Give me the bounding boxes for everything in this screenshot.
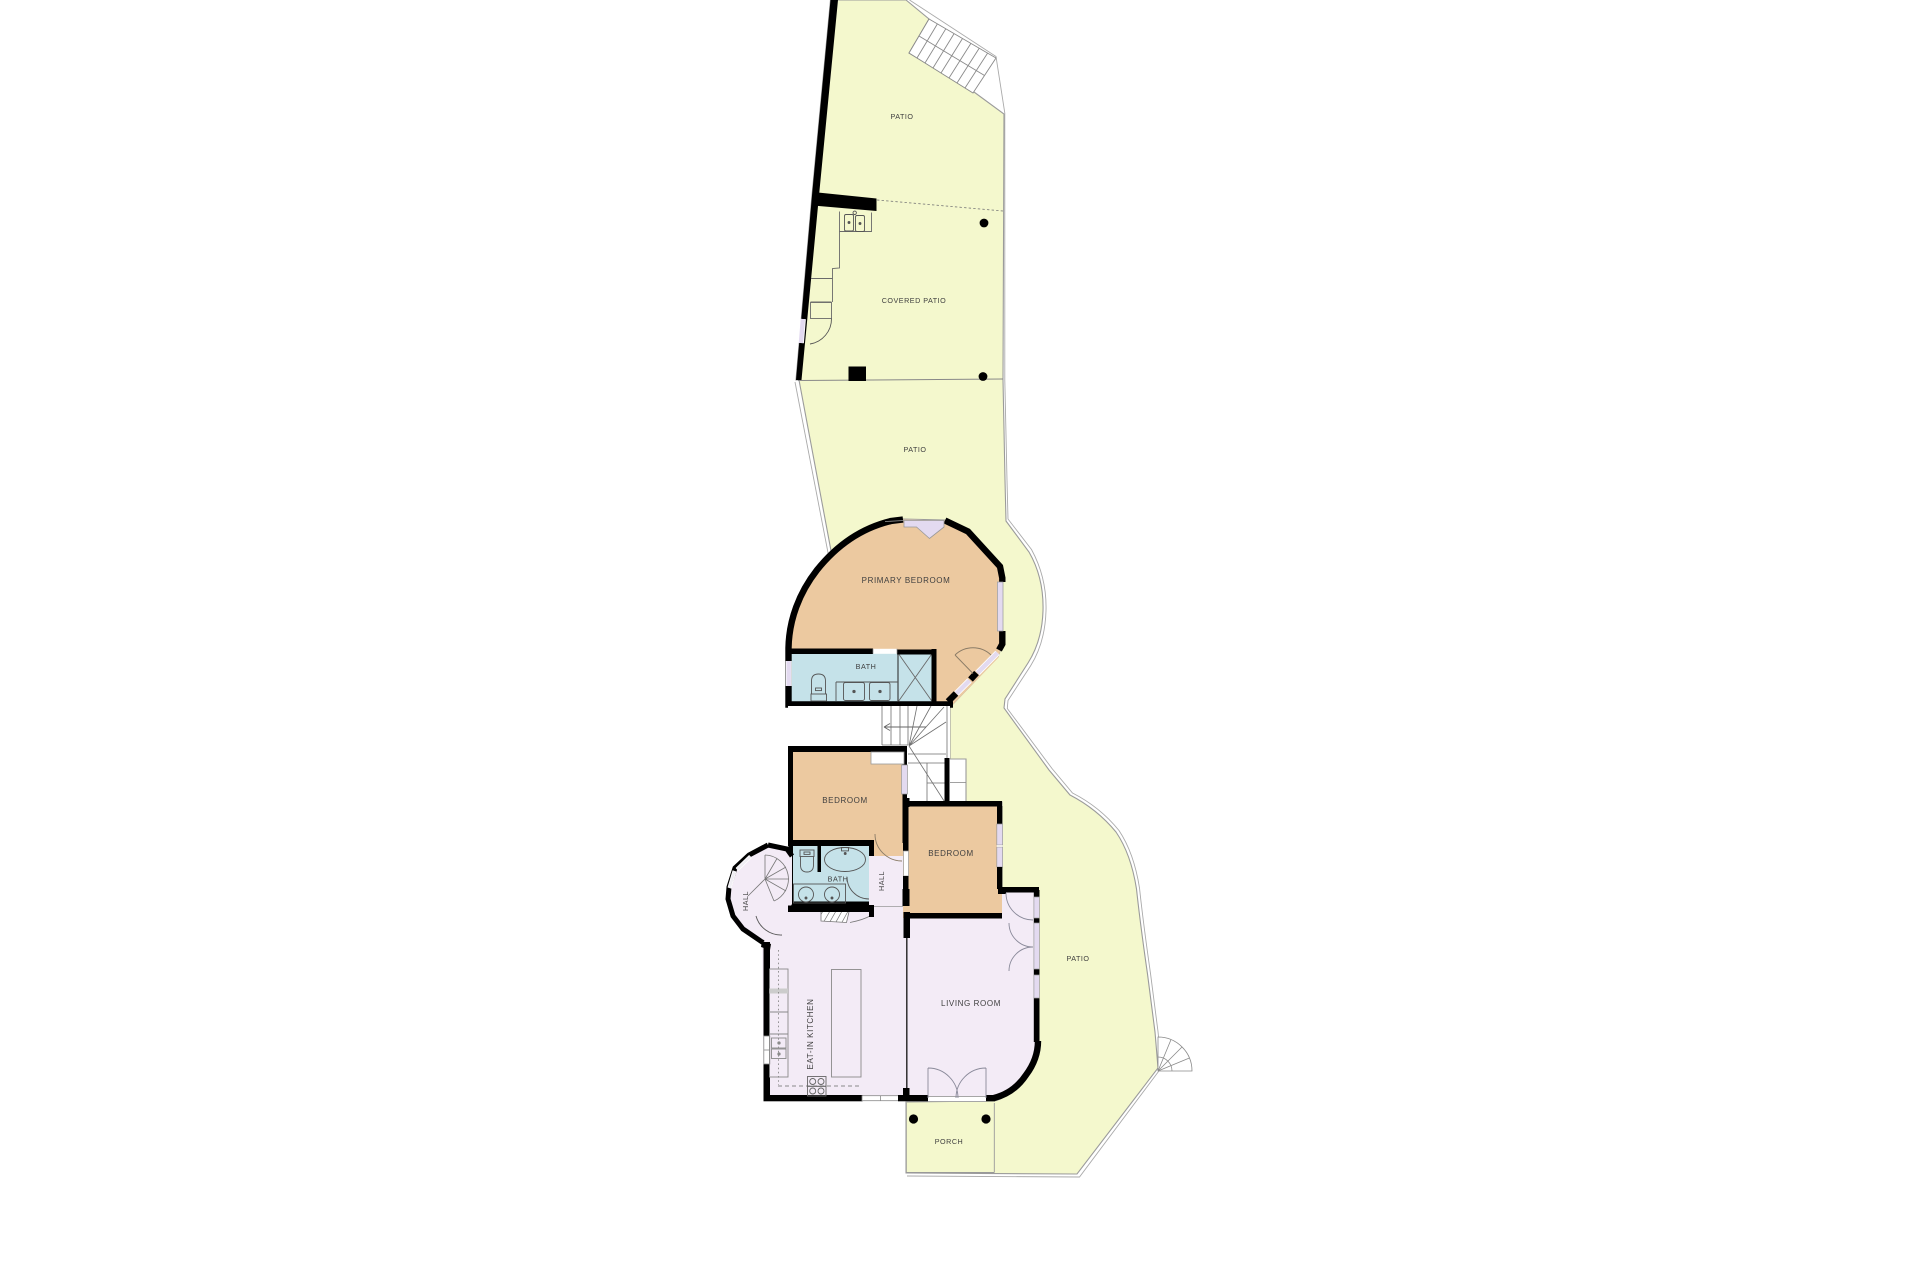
svg-text:EAT-IN KITCHEN: EAT-IN KITCHEN [806, 999, 815, 1070]
svg-text:HALL: HALL [741, 891, 750, 911]
svg-text:PATIO: PATIO [904, 445, 927, 454]
svg-text:BATH: BATH [856, 662, 877, 671]
svg-text:PATIO: PATIO [891, 112, 914, 121]
svg-text:BEDROOM: BEDROOM [822, 796, 868, 805]
svg-text:BEDROOM: BEDROOM [928, 849, 974, 858]
svg-text:HALL: HALL [877, 871, 886, 891]
svg-text:BATH: BATH [828, 875, 849, 884]
svg-text:PORCH: PORCH [935, 1137, 963, 1146]
svg-text:PATIO: PATIO [1067, 954, 1090, 963]
svg-text:COVERED PATIO: COVERED PATIO [882, 296, 947, 305]
svg-text:PRIMARY BEDROOM: PRIMARY BEDROOM [862, 576, 951, 585]
svg-text:LIVING ROOM: LIVING ROOM [941, 999, 1001, 1008]
